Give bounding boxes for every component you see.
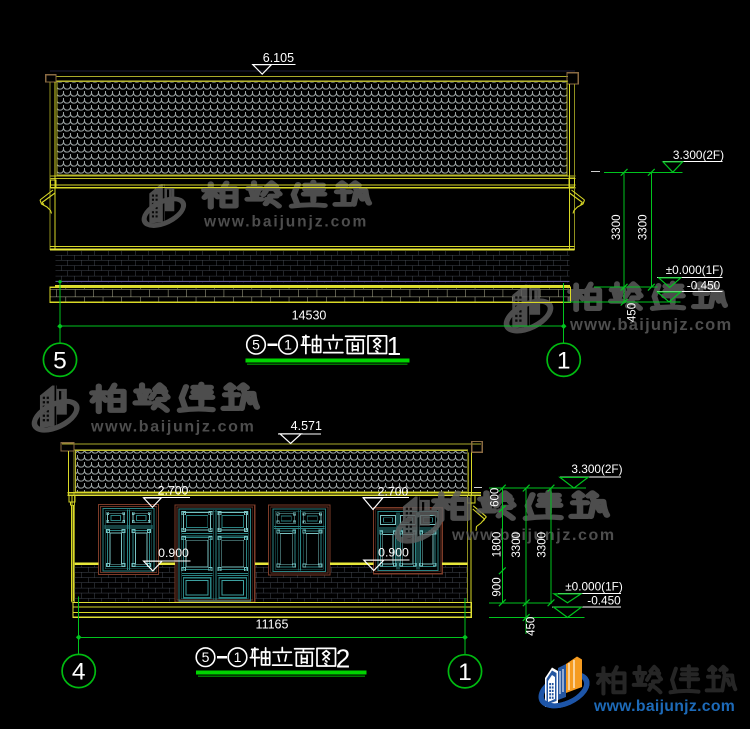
svg-text:900: 900 — [492, 577, 504, 596]
svg-text:±0.000(1F): ±0.000(1F) — [565, 580, 623, 594]
svg-text:0.900: 0.900 — [378, 546, 409, 560]
svg-text:600: 600 — [490, 488, 502, 507]
svg-text:www.baijunjz.com: www.baijunjz.com — [593, 698, 735, 715]
svg-text:1800: 1800 — [492, 532, 504, 558]
svg-text:5: 5 — [252, 337, 260, 353]
svg-text:2.700: 2.700 — [158, 484, 189, 498]
svg-text:4: 4 — [72, 659, 86, 686]
svg-text:450: 450 — [526, 617, 538, 636]
svg-text:1: 1 — [234, 649, 242, 665]
svg-text:5: 5 — [202, 649, 210, 665]
svg-text:1: 1 — [557, 347, 571, 374]
svg-text:www.baijunjz.com: www.baijunjz.com — [203, 214, 368, 231]
svg-text:2: 2 — [336, 644, 350, 674]
svg-text:3.300(2F): 3.300(2F) — [571, 462, 622, 476]
svg-text:www.baijunjz.com: www.baijunjz.com — [569, 316, 732, 334]
svg-text:2.700: 2.700 — [378, 485, 409, 499]
svg-text:3300: 3300 — [638, 215, 650, 241]
svg-text:5: 5 — [53, 347, 67, 374]
svg-text:6.105: 6.105 — [263, 51, 294, 65]
svg-text:1: 1 — [284, 337, 292, 353]
svg-text:11165: 11165 — [256, 617, 289, 631]
svg-text:1: 1 — [458, 659, 472, 686]
svg-text:-0.450: -0.450 — [587, 594, 621, 608]
svg-text:4.571: 4.571 — [291, 419, 322, 433]
svg-text:1: 1 — [387, 331, 401, 361]
svg-text:3.300(2F): 3.300(2F) — [673, 148, 724, 162]
svg-text:0.900: 0.900 — [158, 546, 189, 560]
svg-text:3300: 3300 — [511, 532, 523, 558]
svg-text:14530: 14530 — [292, 309, 327, 323]
svg-text:450: 450 — [627, 303, 639, 322]
svg-text:±0.000(1F): ±0.000(1F) — [666, 263, 724, 277]
svg-text:3300: 3300 — [611, 215, 623, 241]
svg-text:www.baijunjz.com: www.baijunjz.com — [90, 419, 256, 436]
svg-text:3300: 3300 — [536, 532, 548, 558]
svg-text:www.baijunjz.com: www.baijunjz.com — [451, 527, 616, 544]
svg-text:-0.450: -0.450 — [687, 279, 721, 293]
